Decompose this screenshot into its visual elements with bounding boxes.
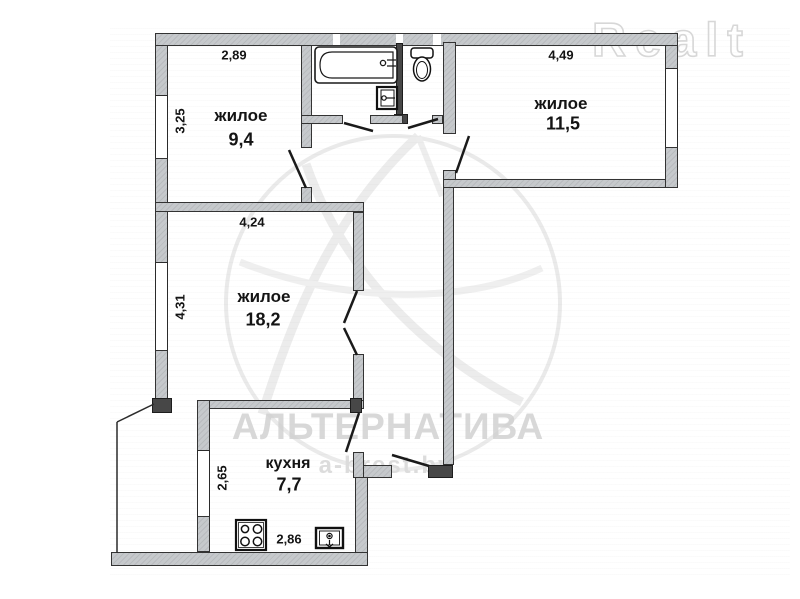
plan-walls [0, 0, 800, 599]
wall-bath-wc-divider [396, 43, 403, 117]
wall-joint-notch [333, 34, 340, 45]
wall-room1-room3 [155, 202, 364, 212]
wall-corner-stub [152, 398, 172, 413]
wall-right-lower [665, 147, 678, 188]
window-room1 [155, 95, 168, 159]
room1-name: жилое [215, 106, 268, 126]
room3-area: 18,2 [245, 310, 280, 331]
wall-room3-right-upper [353, 212, 364, 291]
wall-kitchen-left-lower [197, 516, 210, 552]
room1-dim-top: 2,89 [221, 48, 246, 63]
wall-entry-right-stub [428, 465, 453, 478]
wall-bath-bottom-left [301, 115, 343, 124]
wall-right-upper [665, 45, 678, 69]
kitchen-name: кухня [266, 455, 311, 473]
room2-dim-top: 4,49 [548, 48, 573, 63]
room1-area: 9,4 [228, 130, 253, 151]
wall-left-upper [155, 45, 168, 96]
kitchen-dim-bottom: 2,86 [276, 532, 301, 547]
room1-dim-side: 3,25 [173, 108, 188, 133]
wall-joint-notch [433, 34, 441, 45]
wall-corridor-right [443, 187, 454, 465]
wall-room1-right-upper [301, 45, 312, 148]
room3-name: жилое [238, 287, 291, 307]
wall-wc-bottom-stub [432, 115, 443, 124]
kitchen-area: 7,7 [276, 475, 301, 496]
wall-room3-right-lower [353, 354, 364, 402]
wall-room1-right-stub [301, 187, 312, 203]
wall-bottom [111, 552, 368, 566]
wall-room3-bottom [197, 400, 364, 409]
wall-wc-right [443, 42, 456, 134]
wall-kitchen-left-upper [197, 400, 210, 451]
wall-room2-bottom [443, 179, 678, 188]
window-kitchen [197, 450, 210, 517]
wall-bath-bottom-mid [370, 115, 403, 124]
wall-kitchen-door-stub [350, 398, 362, 413]
room2-area: 11,5 [546, 114, 580, 135]
window-room3 [155, 262, 168, 351]
room3-dim-top: 4,24 [239, 215, 264, 230]
room2-name: жилое [535, 94, 588, 114]
wall-left-lower [155, 350, 168, 401]
wall-joint-notch [396, 34, 403, 43]
room3-dim-side: 4,31 [173, 294, 188, 319]
window-room2 [665, 68, 678, 148]
floor-plan: Realt АЛЬТЕРНАТИВА a-brest.by [0, 0, 800, 599]
kitchen-dim-side: 2,65 [215, 465, 230, 490]
wall-kitchen-right-stub [353, 452, 364, 478]
wall-top [155, 33, 678, 46]
